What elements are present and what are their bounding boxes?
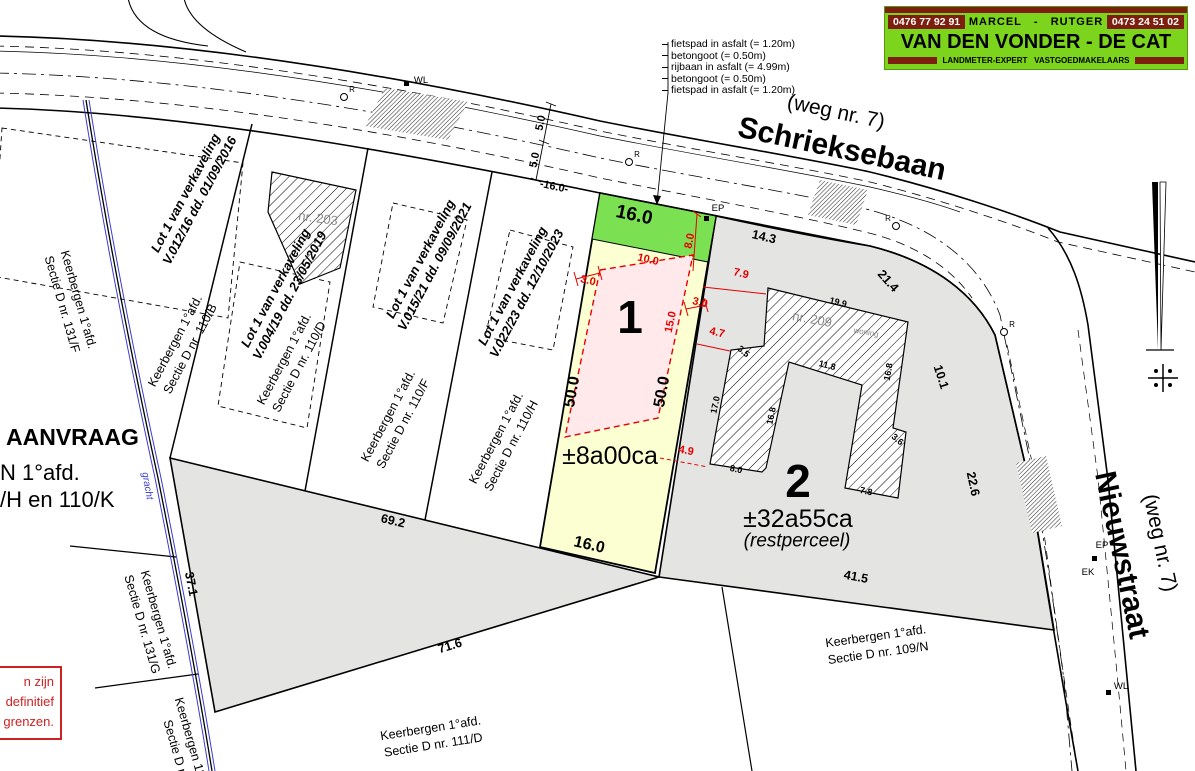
label-layer: (weg nr. 7)Schrieksebaan(weg nr. 7)Nieuw… — [0, 0, 1195, 771]
logo-phone-right: 0473 24 51 02 — [1107, 15, 1184, 29]
rdim-15-0: 15.0 — [662, 310, 680, 334]
kad-131F: Keerbergen 1°afd. Sectie D nr. 131/F — [40, 249, 100, 356]
logo-bar-left — [888, 57, 937, 64]
dim-bottom-16: 16.0 — [571, 532, 606, 559]
house-woning: woning — [853, 326, 880, 341]
bdim-7-8: 7.8 — [859, 485, 874, 499]
dim-front-16: 16.0 — [613, 200, 654, 232]
lot-v012-16: Lot 1 van verkaveling V.012/16 dd. 01/09… — [145, 126, 241, 267]
legend-tick — [662, 44, 668, 45]
legend-text: fietspad in asfalt (= 1.20m) — [671, 84, 795, 96]
road-cross-section-legend: fietspad in asfalt (= 1.20m)betongoot (=… — [662, 39, 912, 97]
surveyor-logo: 0476 77 92 91 MARCEL - RUTGER 0473 24 51… — [884, 6, 1188, 70]
legend-text: fietspad in asfalt (= 1.20m) — [671, 38, 795, 50]
dim-69-2: 69.2 — [379, 510, 406, 531]
dim-10-1: 10.1 — [930, 363, 953, 391]
parcel1-area: ±8a00ca — [562, 440, 658, 473]
dim-left-50: 50.0 — [560, 375, 586, 409]
boundary-warning-box: n zijndefinitiefgrenzen. — [0, 666, 62, 740]
marker-R-4: R — [885, 214, 891, 224]
kad-110F: Keerbergen 1°afd. Sectie D nr. 110/F — [357, 367, 435, 473]
warning-line-1: definitief — [0, 692, 54, 712]
rdim-10-0: 10.0 — [636, 251, 660, 270]
kad-110B: Keerbergen 1°afd. Sectie D nr. 110/B — [144, 292, 222, 398]
bdim-16-8a: 16.8 — [764, 406, 779, 426]
kad-110H: Keerbergen 1°afd. Sectie D nr. 110/H — [465, 389, 543, 495]
dim-road-5b: 5.0 — [526, 151, 543, 169]
logo-bar-right — [1135, 57, 1184, 64]
rdim-3-0-right: 3.0 — [691, 294, 709, 311]
legend-text: betongoot (= 0.50m) — [671, 73, 766, 85]
logo-title: VAN DEN VONDER - DE CAT — [885, 29, 1187, 55]
marker-EP-lot1: EP — [712, 203, 725, 215]
logo-phone-left: 0476 77 92 91 — [888, 15, 965, 29]
kad-111D: Keerbergen 1°afd. Sectie D nr. 111/D — [379, 712, 485, 761]
marker-R-2: R — [634, 150, 640, 160]
gracht-label: gracht — [138, 471, 156, 501]
bdim-19-9: 19.9 — [828, 295, 848, 311]
rdim-3-0-left: 3.0 — [579, 272, 597, 289]
warning-line-2: grenzen. — [0, 712, 54, 732]
bdim-3-6: 3.6 — [888, 432, 905, 449]
marker-R-3: R — [1009, 320, 1015, 330]
marker-EP-nieuwstraat: EP — [1096, 540, 1109, 552]
lot-v022-23: Lot 1 van verkaveling V.022/23 dd. 12/10… — [472, 219, 568, 360]
legend-tick — [662, 90, 668, 91]
legend-tick — [662, 78, 668, 79]
request-line-2: N 1°afd. — [0, 460, 80, 486]
parcel1-number: 1 — [617, 288, 643, 348]
rdim-4-9: 4.9 — [677, 443, 695, 460]
cadastral-plan: (weg nr. 7)Schrieksebaan(weg nr. 7)Nieuw… — [0, 0, 1195, 771]
lot-v015-21: Lot 1 van verkaveling V.015/21 dd. 09/09… — [380, 192, 476, 333]
rdim-7-9: 7.9 — [732, 265, 750, 282]
parcel2-note: (restperceel) — [744, 530, 851, 555]
dim-road-16: -16.0- — [538, 177, 569, 197]
rdim-8-0: 8.0 — [681, 232, 698, 250]
dim-41-5: 41.5 — [843, 567, 870, 588]
legend-text: rijbaan in asfalt (= 4.99m) — [671, 61, 790, 73]
bdim-3-5: 3.5 — [734, 344, 751, 361]
dim-71-6: 71.6 — [436, 635, 464, 658]
kad-131G: Keerbergen 1°afd. Sectie D nr. 131/G — [120, 568, 181, 675]
legend-text: betongoot (= 0.50m) — [671, 50, 766, 62]
dim-22-6: 22.6 — [963, 470, 984, 497]
marker-WL-top: WL — [414, 75, 428, 87]
logo-subtitle: LANDMETER-EXPERT VASTGOEDMAKELAARS — [937, 56, 1136, 65]
marker-R-1: R — [349, 85, 355, 95]
kad-bottom-cut: Keerbergen 1°afd. Sectie D nr. — [154, 696, 214, 771]
dim-14-3: 14.3 — [750, 226, 777, 247]
house-nr209: nr. 209 — [791, 308, 833, 332]
legend-tick — [662, 67, 668, 68]
rdim-4-7: 4.7 — [708, 324, 726, 341]
bdim-17-0: 17.0 — [708, 395, 723, 415]
marker-EK-nieuwstraat: EK — [1082, 567, 1095, 579]
logo-names: MARCEL - RUTGER — [969, 16, 1103, 28]
legend-tick — [662, 55, 668, 56]
dim-road-5a: 5.0 — [532, 114, 549, 132]
legend-item-4: fietspad in asfalt (= 1.20m) — [662, 85, 912, 97]
request-title: AANVRAAG — [6, 424, 139, 451]
dim-37-1: 37.1 — [181, 571, 202, 598]
logo-top-bar — [885, 7, 1187, 13]
bdim-11-8: 11.8 — [817, 358, 836, 373]
warning-line-0: n zijn — [0, 672, 54, 692]
bdim-16-8b: 16.8 — [882, 362, 897, 381]
dim-right-50: 50.0 — [650, 375, 676, 409]
dim-21-4: 21.4 — [874, 267, 902, 296]
bdim-8-0: 8.0 — [729, 463, 744, 477]
kad-109N: Keerbergen 1°afd. Sectie D nr. 109/N — [824, 621, 929, 669]
request-line-3: /H en 110/K — [0, 487, 115, 513]
marker-WL-bottom: WL — [1114, 681, 1128, 693]
